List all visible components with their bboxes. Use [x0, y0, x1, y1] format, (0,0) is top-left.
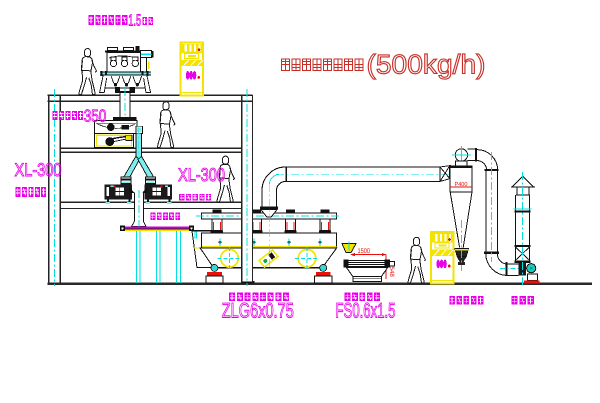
svg-text:1500: 1500 [358, 248, 371, 255]
svg-text:FS0.6x1.5: FS0.6x1.5 [336, 300, 396, 323]
svg-text:1.5: 1.5 [128, 12, 141, 29]
svg-text:XL-300: XL-300 [178, 164, 225, 185]
svg-text:XL-300: XL-300 [15, 159, 62, 180]
svg-text:ZLG6x0.75: ZLG6x0.75 [222, 300, 294, 323]
svg-text:(500kg/h): (500kg/h) [367, 50, 486, 80]
svg-text:548: 548 [388, 267, 395, 278]
svg-text:350: 350 [84, 107, 107, 126]
